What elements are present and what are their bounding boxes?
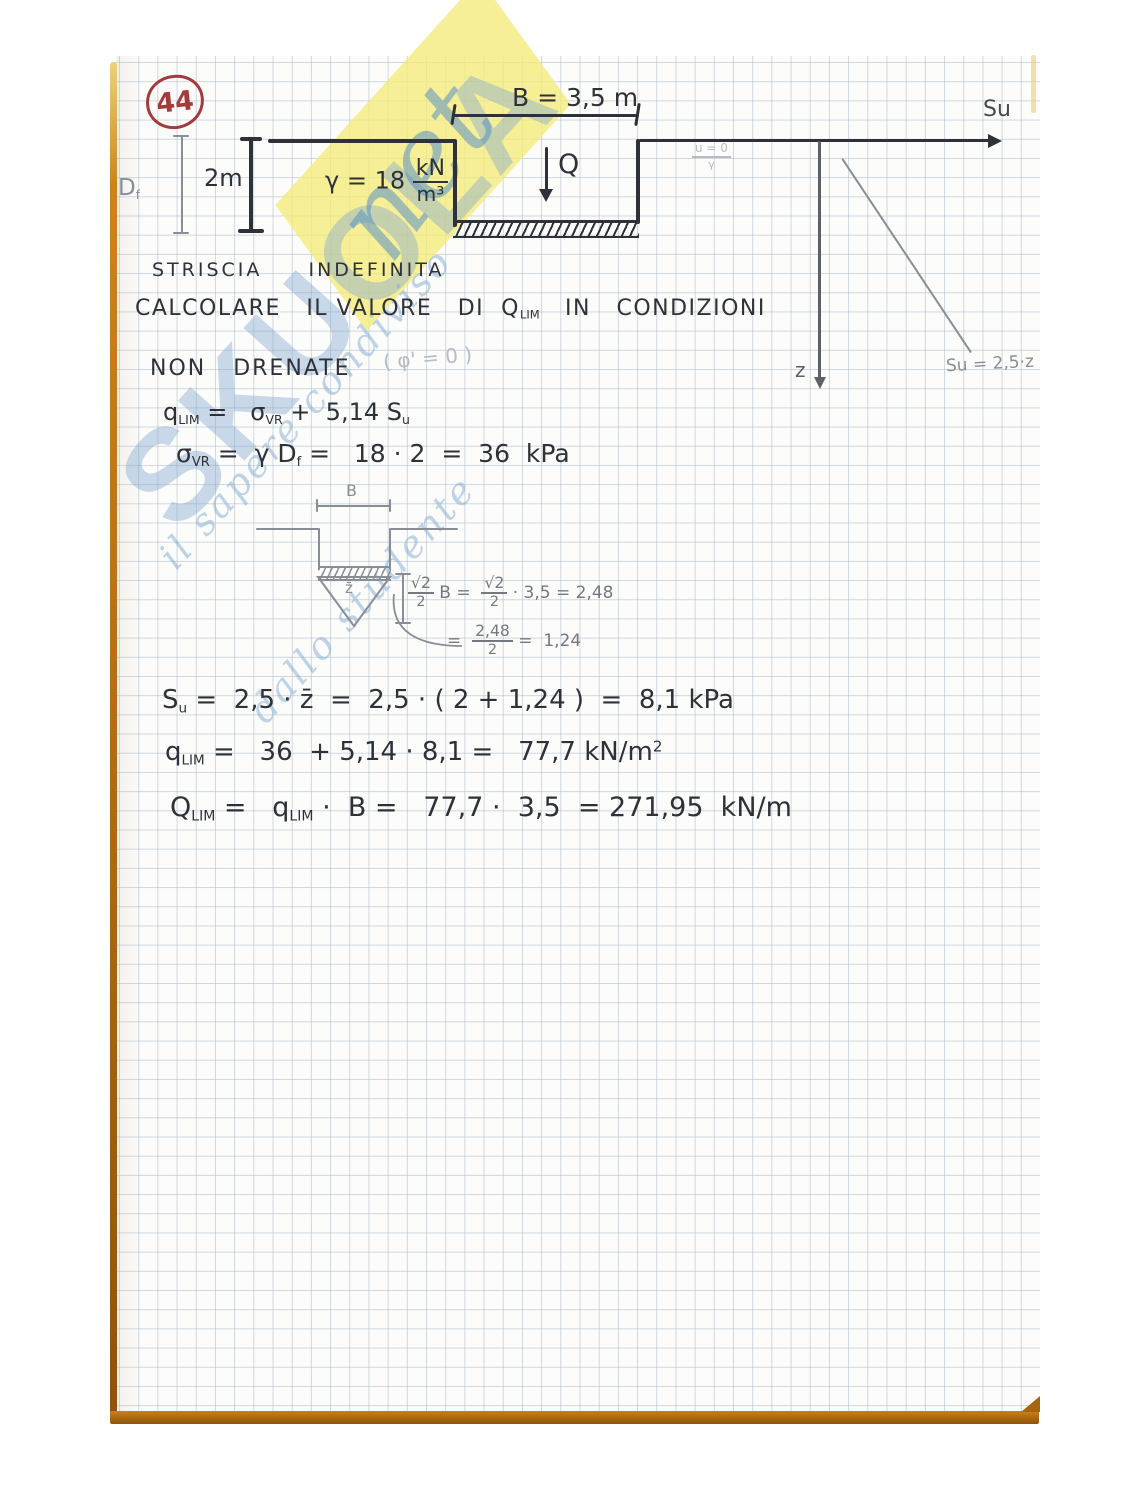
- z-axis-label: z: [795, 359, 806, 382]
- sketch-ground-left: [256, 528, 319, 530]
- depth-dim-line: [249, 139, 253, 233]
- page-number: 44: [155, 85, 196, 120]
- page-corner-fold: [1021, 1396, 1040, 1412]
- dim-b-label: B = 3,5 m: [512, 84, 638, 113]
- df-dim-tick-bottom: [173, 232, 189, 234]
- su-axis-arrowhead-icon: [988, 134, 1002, 148]
- failure-wedge-triangle: [315, 575, 393, 629]
- depth-dim-cap-top: [240, 137, 262, 141]
- page-bottom-edge: [110, 1411, 1039, 1424]
- z-axis-arrowhead-icon: [814, 377, 826, 389]
- load-arrowhead-icon: [539, 189, 553, 202]
- page-left-edge: [110, 62, 117, 1414]
- eq-sigma-vr: σVR = γ Df = 18 · 2 = 36 kPa: [176, 440, 570, 471]
- sketch-b-label: B: [346, 482, 357, 500]
- dim-b-line: [454, 114, 639, 117]
- unit-weight-label: γ = 18 kNm³: [325, 157, 448, 206]
- depth-dim-cap-bottom: [238, 229, 264, 233]
- trench-right-wall: [636, 139, 640, 224]
- task-line-2: NON DRENATE: [150, 356, 350, 381]
- df-label: Df: [118, 175, 140, 203]
- eq-qlim-value: qLIM = 36 + 5,14 · 8,1 = 77,7 kN/m2: [165, 738, 662, 769]
- pore-pressure-note: u = 0γ: [692, 142, 731, 170]
- sketch-wall-left: [318, 528, 320, 570]
- load-arrow-line: [545, 147, 548, 191]
- df-dim-line: [181, 136, 183, 234]
- page-right-edge: [1031, 55, 1036, 113]
- eq-qlim-formula: qLIM = σVR + 5,14 Su: [163, 399, 410, 427]
- sketch-dim-tick-left: [316, 499, 318, 512]
- heading: STRISCIA INDEFINITA: [152, 260, 444, 282]
- sketch-wall-right: [389, 528, 391, 570]
- trench-left-wall: [453, 139, 457, 227]
- eq-Qlim-result: QLIM = qLIM · B = 77,7 · 3,5 = 271,95 kN…: [170, 792, 792, 825]
- sketch-ground-right: [390, 528, 458, 530]
- task-line-1: CALCOLARE IL VALORE DI QLIM IN CONDIZION…: [135, 296, 766, 322]
- sketch-zbar-label: z̄: [345, 580, 353, 597]
- ground-line-left: [268, 139, 456, 143]
- df-dim-tick-top: [173, 135, 189, 137]
- load-label: Q: [558, 149, 579, 180]
- eq-su: Su = 2,5 · z̄ = 2,5 · ( 2 + 1,24 ) = 8,1…: [162, 686, 734, 717]
- z-axis-line: [818, 141, 821, 379]
- foundation-base-hatch: [453, 220, 639, 238]
- wedge-eq-2: = 2,482 = 1,24: [447, 623, 581, 659]
- depth-label: 2m: [204, 165, 243, 193]
- sketch-dim-line: [317, 505, 391, 507]
- su-axis-label: Su: [983, 97, 1011, 122]
- wedge-eq-1: √22 B = √22 · 3,5 = 2,48: [408, 575, 614, 611]
- sketch-dim-tick-right: [389, 499, 391, 512]
